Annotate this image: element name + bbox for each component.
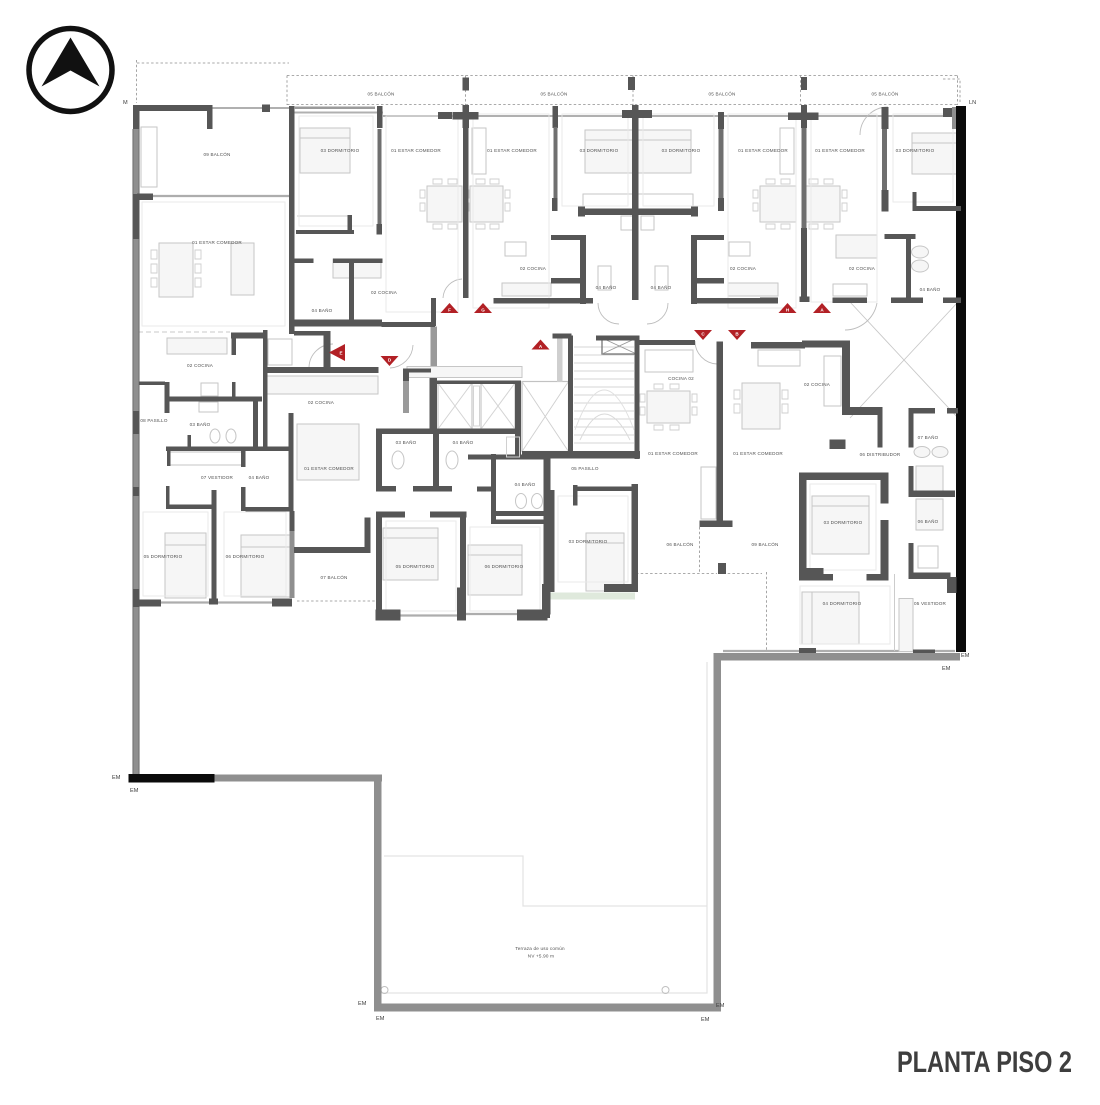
- svg-text:06 BALCÓN: 06 BALCÓN: [666, 541, 693, 547]
- svg-text:08 PASILLO: 08 PASILLO: [140, 418, 167, 423]
- svg-text:06 DORMITORIO: 06 DORMITORIO: [485, 564, 524, 569]
- svg-text:07 BALCÓN: 07 BALCÓN: [320, 574, 347, 580]
- svg-text:05 PASILLO: 05 PASILLO: [571, 466, 598, 471]
- svg-text:04 BAÑO: 04 BAÑO: [596, 284, 617, 290]
- svg-text:F: F: [448, 308, 451, 313]
- svg-text:01 ESTAR COMEDOR: 01 ESTAR COMEDOR: [192, 240, 242, 245]
- svg-text:07 BAÑO: 07 BAÑO: [918, 434, 939, 440]
- svg-text:01 ESTAR COMEDOR: 01 ESTAR COMEDOR: [487, 148, 537, 153]
- svg-text:04 BAÑO: 04 BAÑO: [453, 439, 474, 445]
- svg-text:PLANTA PISO 2: PLANTA PISO 2: [897, 1046, 1072, 1079]
- svg-text:04 BAÑO: 04 BAÑO: [249, 474, 270, 480]
- svg-text:Terraza de uso común: Terraza de uso común: [515, 946, 565, 951]
- svg-text:05 DORMITORIO: 05 DORMITORIO: [144, 554, 183, 559]
- svg-text:04 BAÑO: 04 BAÑO: [515, 481, 536, 487]
- svg-text:04 BAÑO: 04 BAÑO: [312, 307, 333, 313]
- svg-text:03 DORMITORIO: 03 DORMITORIO: [824, 520, 863, 525]
- svg-text:03 DORMITORIO: 03 DORMITORIO: [896, 148, 935, 153]
- svg-text:01 ESTAR COMEDOR: 01 ESTAR COMEDOR: [648, 451, 698, 456]
- svg-text:EM: EM: [376, 1016, 385, 1022]
- svg-text:COCINA 02: COCINA 02: [668, 376, 694, 381]
- svg-text:03 DORMITORIO: 03 DORMITORIO: [569, 539, 608, 544]
- svg-text:06 BAÑO: 06 BAÑO: [918, 518, 939, 524]
- svg-text:04 BAÑO: 04 BAÑO: [651, 284, 672, 290]
- svg-text:05 BALCÓN: 05 BALCÓN: [367, 91, 394, 97]
- svg-text:05 VESTIDOR: 05 VESTIDOR: [914, 601, 947, 606]
- svg-text:EM: EM: [961, 653, 970, 659]
- svg-text:09 BALCÓN: 09 BALCÓN: [751, 541, 778, 547]
- svg-text:09 BALCÓN: 09 BALCÓN: [203, 151, 230, 157]
- svg-text:02 COCINA: 02 COCINA: [730, 266, 757, 271]
- svg-text:EM: EM: [942, 666, 951, 672]
- svg-text:02 COCINA: 02 COCINA: [849, 266, 876, 271]
- svg-text:06 DISTRIBUDOR: 06 DISTRIBUDOR: [860, 452, 901, 457]
- svg-text:05 BALCÓN: 05 BALCÓN: [871, 91, 898, 97]
- svg-text:04 BAÑO: 04 BAÑO: [920, 286, 941, 292]
- svg-text:03 DORMITORIO: 03 DORMITORIO: [321, 148, 360, 153]
- svg-text:05 BALCÓN: 05 BALCÓN: [540, 91, 567, 97]
- svg-text:02 COCINA: 02 COCINA: [804, 382, 831, 387]
- svg-text:E: E: [339, 351, 342, 356]
- svg-text:02 COCINA: 02 COCINA: [308, 400, 335, 405]
- svg-text:M: M: [123, 100, 128, 106]
- svg-text:02 COCINA: 02 COCINA: [371, 290, 398, 295]
- svg-text:05 BALCÓN: 05 BALCÓN: [708, 91, 735, 97]
- svg-text:01 ESTAR COMEDOR: 01 ESTAR COMEDOR: [391, 148, 441, 153]
- svg-text:05 DORMITORIO: 05 DORMITORIO: [396, 564, 435, 569]
- svg-text:EM: EM: [716, 1003, 725, 1009]
- svg-text:EM: EM: [358, 1001, 367, 1007]
- svg-text:04 DORMITORIO: 04 DORMITORIO: [823, 601, 862, 606]
- svg-text:06 DORMITORIO: 06 DORMITORIO: [226, 554, 265, 559]
- svg-text:NV +5.90 m: NV +5.90 m: [528, 954, 554, 959]
- svg-text:02 COCINA: 02 COCINA: [520, 266, 547, 271]
- svg-text:01 ESTAR COMEDOR: 01 ESTAR COMEDOR: [738, 148, 788, 153]
- svg-text:01 ESTAR COMEDOR: 01 ESTAR COMEDOR: [733, 451, 783, 456]
- svg-text:03 BAÑO: 03 BAÑO: [190, 421, 211, 427]
- svg-text:03 BAÑO: 03 BAÑO: [396, 439, 417, 445]
- svg-text:01 ESTAR COMEDOR: 01 ESTAR COMEDOR: [304, 466, 354, 471]
- svg-text:G: G: [481, 308, 485, 313]
- svg-text:EM: EM: [112, 775, 121, 781]
- svg-text:01 ESTAR COMEDOR: 01 ESTAR COMEDOR: [815, 148, 865, 153]
- svg-text:07 VESTIDOR: 07 VESTIDOR: [201, 475, 234, 480]
- svg-text:EM: EM: [130, 788, 139, 794]
- svg-text:03 DORMITORIO: 03 DORMITORIO: [662, 148, 701, 153]
- svg-text:02 COCINA: 02 COCINA: [187, 363, 214, 368]
- svg-text:LN: LN: [969, 100, 976, 106]
- svg-text:EM: EM: [701, 1017, 710, 1023]
- svg-text:03 DORMITORIO: 03 DORMITORIO: [580, 148, 619, 153]
